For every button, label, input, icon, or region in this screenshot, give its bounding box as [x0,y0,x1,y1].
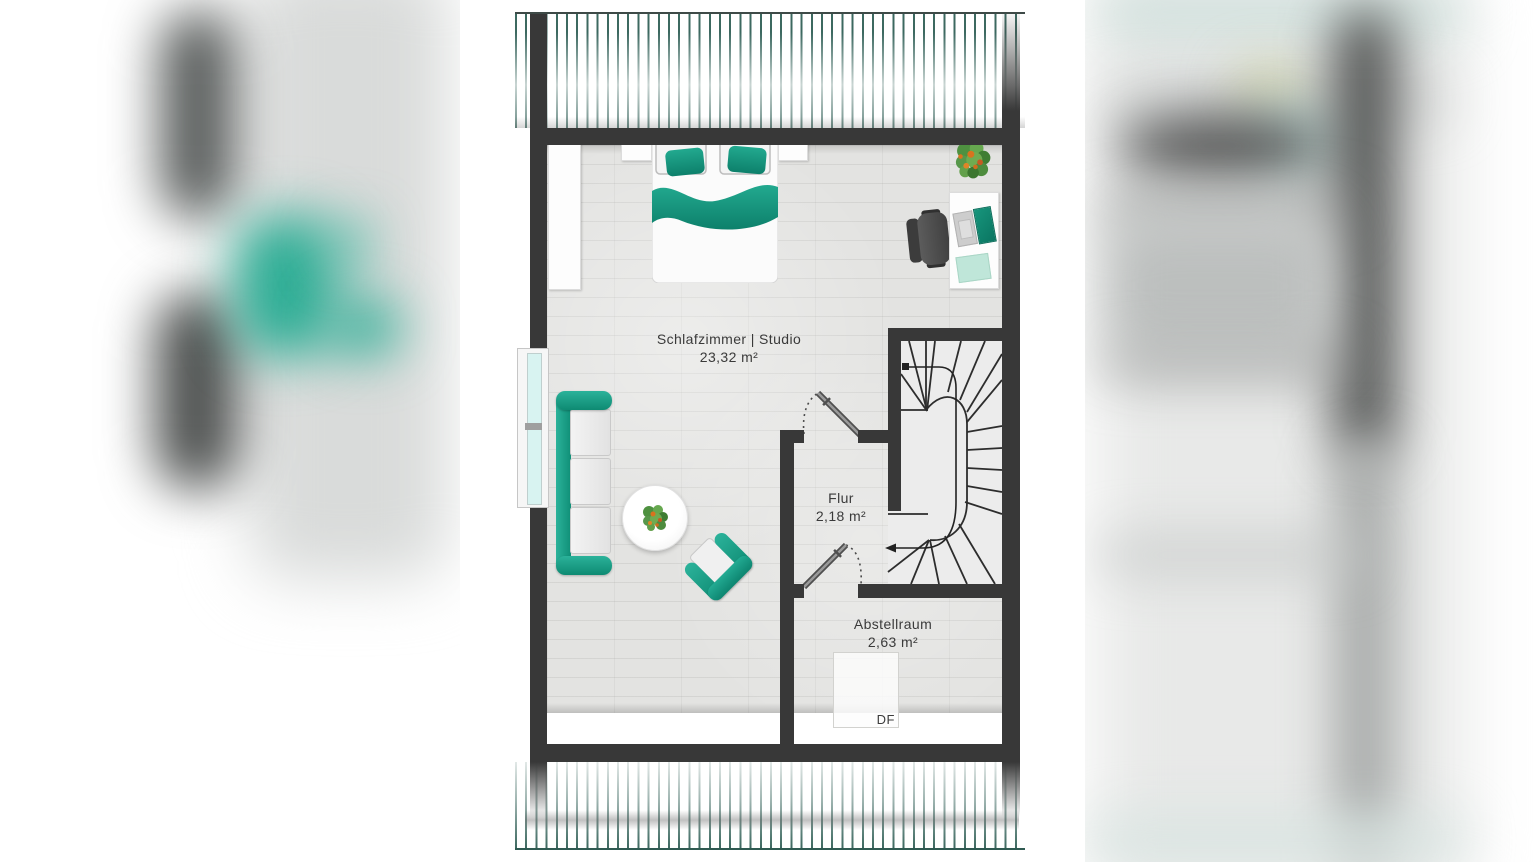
under-eave-strip [547,713,1002,744]
laptop [952,206,998,248]
exterior-wall-right-upper [1002,14,1020,128]
screenshot-canvas: DF Schlafzimmer | Studio 23,32 m² Flur 2… [0,0,1533,862]
interior-wall-abstell-top-a [794,584,804,598]
double-bed [652,129,778,283]
exterior-wall-left-fade [530,762,547,817]
room-label-abstellraum: Abstellraum 2,63 m² [813,615,973,651]
wardrobe [548,133,581,290]
room-name: Flur [791,489,891,507]
roof-slope-hatch-top [515,14,1025,128]
interior-wall-divider [780,430,794,744]
interior-wall-flur-top-a [794,430,804,443]
room-area: 2,18 m² [791,507,891,525]
roof-slope-hatch-bottom [515,762,1025,848]
coffee-table [622,485,688,551]
interior-wall-flur-top-b [858,430,888,443]
exterior-wall-top [530,128,1020,145]
window-left-wall [517,348,549,508]
accent-pillow-right [727,145,767,174]
interior-wall-abstell-top-b [858,584,1002,598]
sofa [556,391,612,575]
window-mullion [525,423,542,430]
exterior-wall-right-fade [1002,762,1020,817]
floor-slope-shadow [547,703,1002,713]
desk-paper [955,253,991,283]
blurred-backdrop-left [0,0,460,862]
room-label-schlafzimmer: Schlafzimmer | Studio 23,32 m² [609,330,849,366]
roof-hatch-shadow [525,810,1019,830]
skylight-label: DF [877,712,895,727]
exterior-wall-bottom [530,744,1020,762]
room-area: 23,32 m² [609,348,849,366]
room-label-flur: Flur 2,18 m² [791,489,891,525]
room-name: Abstellraum [813,615,973,633]
blurred-backdrop-right [1085,0,1533,862]
floor-plan: DF Schlafzimmer | Studio 23,32 m² Flur 2… [515,12,1025,852]
skylight: DF [833,652,899,728]
room-area: 2,63 m² [813,633,973,651]
accent-pillow-left [665,147,706,177]
interior-wall-stair-left [888,328,901,511]
desk [949,192,999,289]
roof-eave-line-bottom [515,848,1025,850]
office-chair [905,208,955,270]
room-name: Schlafzimmer | Studio [609,330,849,348]
exterior-wall-right [1002,128,1020,762]
coffee-table-plant [635,498,675,538]
interior-wall-stair-top [888,328,1002,341]
